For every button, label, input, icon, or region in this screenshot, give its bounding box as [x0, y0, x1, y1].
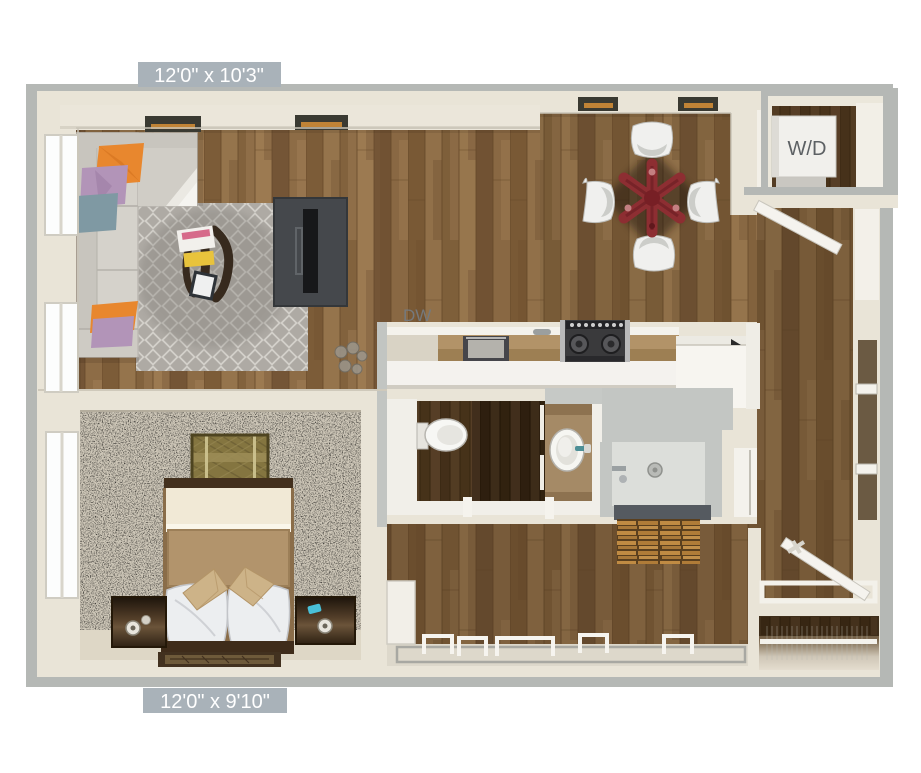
svg-text:DW: DW	[403, 306, 431, 325]
svg-text:12'0" x 9'10": 12'0" x 9'10"	[160, 691, 270, 713]
svg-text:W/D: W/D	[788, 138, 827, 160]
svg-text:12'0" x 10'3": 12'0" x 10'3"	[154, 65, 264, 87]
